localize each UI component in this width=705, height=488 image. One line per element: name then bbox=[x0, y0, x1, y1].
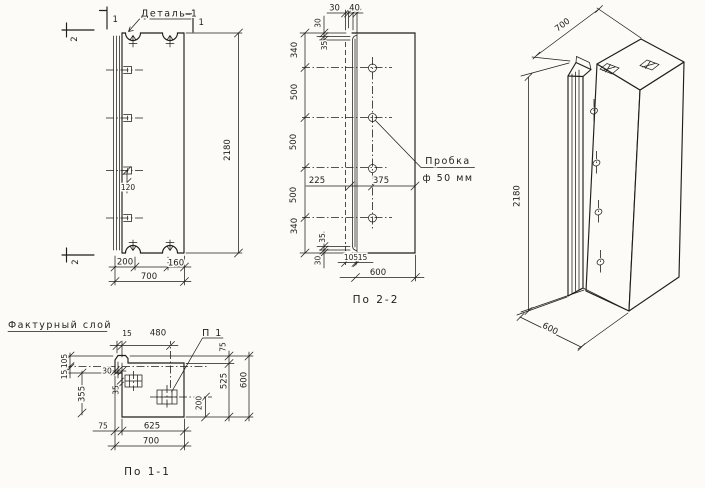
dim-label-225: 225 bbox=[309, 176, 325, 186]
cut-mark-1-left-label: 1 bbox=[113, 15, 118, 25]
dim-label-700: 700 bbox=[141, 272, 157, 282]
dim-label-top-15: 15 bbox=[122, 329, 132, 338]
section-2-2-caption: По 2-2 bbox=[353, 294, 400, 306]
dim-label-500-b: 500 bbox=[289, 134, 299, 150]
dim-ticks bbox=[66, 352, 86, 417]
dim-height-lines bbox=[186, 33, 242, 253]
drawing-sheet: 120 2180 200 160 700 1 1 2 2 Деталь 1 bbox=[0, 0, 705, 488]
dim-label-105: 105 bbox=[344, 253, 359, 262]
lifting-loop-icon bbox=[166, 36, 174, 48]
dim-top-lines bbox=[110, 341, 178, 357]
dim-label-hook-spacing: 120 bbox=[121, 183, 136, 192]
dim-label-left-105: 105 bbox=[60, 354, 69, 369]
dim-label-right-75: 75 bbox=[219, 342, 228, 352]
dim-label-step-35: 35 bbox=[112, 385, 121, 395]
iso-dim-600-lines bbox=[517, 297, 628, 349]
cut-mark-2-top bbox=[62, 23, 94, 37]
dim-right-lines bbox=[130, 351, 253, 421]
dim-label-15: 15 bbox=[358, 253, 368, 262]
section-1-1-view: Фактурный слой П 1 15 480 75 525 600 200 bbox=[8, 320, 253, 478]
dim-label-top-30: 30 bbox=[329, 4, 340, 14]
lifting-loop-icon bbox=[129, 240, 137, 251]
lifting-loop-icon bbox=[166, 240, 174, 251]
dim-label-lip-35: 35 bbox=[320, 41, 329, 51]
embed-callout-label: П 1 bbox=[202, 328, 223, 339]
panel-bottom-edge bbox=[122, 246, 184, 254]
dim-label-340-bottom: 340 bbox=[290, 218, 300, 234]
dim-label-bottom-75: 75 bbox=[98, 422, 108, 431]
dim-left-lines bbox=[64, 353, 113, 415]
lifting-loop-icon bbox=[129, 36, 137, 48]
plug-callout-line1: Пробка bbox=[425, 156, 470, 167]
cut-mark-2-bottom-label: 2 bbox=[71, 259, 81, 264]
dim-label-lip-30: 30 bbox=[314, 18, 323, 28]
dim-label-480: 480 bbox=[150, 329, 166, 339]
dim-label-500-a: 500 bbox=[290, 84, 300, 100]
dim-label-iso-700: 700 bbox=[553, 17, 572, 35]
dim-label-375: 375 bbox=[373, 176, 389, 186]
embed-part-2 bbox=[157, 385, 177, 409]
panel-drawing: 120 2180 200 160 700 1 1 2 2 Деталь 1 bbox=[0, 0, 705, 488]
isometric-view: 700 2180 600 bbox=[513, 6, 685, 351]
dim-label-355: 355 bbox=[78, 386, 88, 402]
iso-facing-slab-top bbox=[568, 63, 591, 77]
cut-mark-1-left bbox=[100, 7, 108, 29]
dim-label-bottom-700: 700 bbox=[143, 437, 159, 447]
dim-label-iso-2180: 2180 bbox=[513, 185, 523, 207]
cut-mark-1-right-label: 1 bbox=[199, 18, 204, 28]
cut-mark-2-top-label: 2 bbox=[70, 36, 80, 41]
embed-part-1 bbox=[125, 371, 142, 391]
embed-leader bbox=[172, 338, 224, 392]
dim-label-step-30: 30 bbox=[102, 367, 112, 376]
dim-label-340-top: 340 bbox=[290, 42, 300, 58]
dim-label-left-15: 15 bbox=[60, 370, 69, 380]
dim-label-right-600: 600 bbox=[240, 372, 250, 388]
dim-label-lip-30b: 30 bbox=[314, 256, 323, 266]
plug-callout-line2: ф 50 мм bbox=[422, 173, 473, 184]
dim-label-200: 200 bbox=[195, 396, 204, 411]
dim-label-525: 525 bbox=[220, 373, 230, 389]
section-outline bbox=[352, 33, 415, 253]
dim-label-lip-35b: 35 bbox=[318, 233, 327, 243]
front-view: 120 2180 200 160 700 1 1 2 2 Деталь 1 bbox=[62, 7, 243, 286]
dim-label-200: 200 bbox=[117, 258, 133, 268]
section-1-1-caption: По 1-1 bbox=[124, 466, 171, 478]
dim-label-top-40: 40 bbox=[349, 4, 360, 14]
section-2-2-view: 340 500 500 500 340 225 375 30 40 30 35 … bbox=[289, 4, 475, 307]
plug-holes bbox=[302, 57, 392, 229]
detail-callout-label: Деталь 1 bbox=[141, 9, 198, 20]
dim-label-height: 2180 bbox=[223, 139, 233, 161]
dim-label-500-c: 500 bbox=[289, 187, 299, 203]
detail-leader bbox=[129, 19, 192, 32]
dim-label-160: 160 bbox=[168, 259, 184, 269]
dim-label-600: 600 bbox=[370, 268, 386, 278]
edge-hooks bbox=[106, 67, 145, 222]
dim-label-625: 625 bbox=[144, 422, 160, 432]
panel-top-edge bbox=[122, 33, 184, 41]
facing-layer-callout: Фактурный слой bbox=[8, 320, 112, 331]
